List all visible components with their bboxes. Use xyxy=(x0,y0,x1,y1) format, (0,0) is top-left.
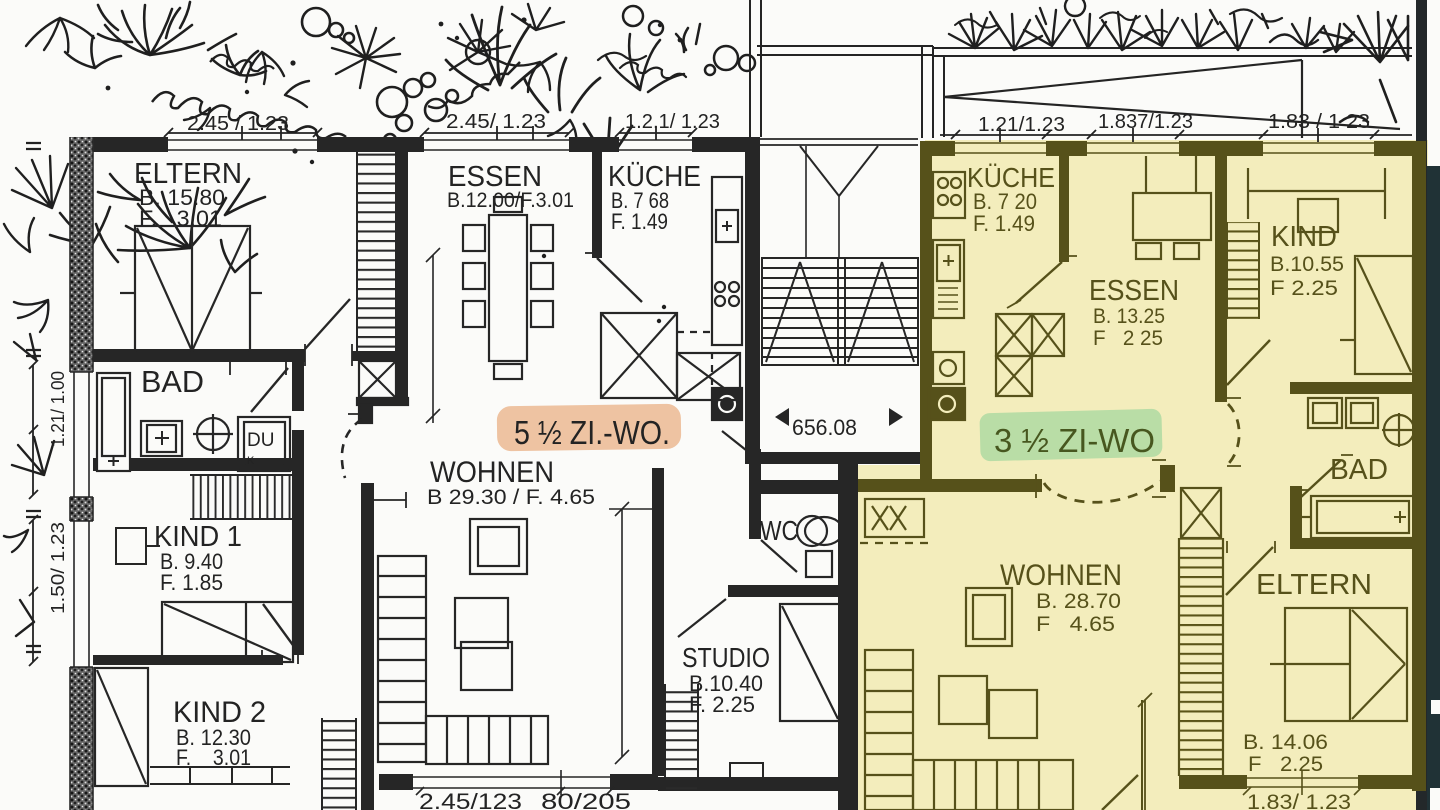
svg-text:2.45/ 1.23: 2.45/ 1.23 xyxy=(446,111,546,133)
svg-text:WOHNEN: WOHNEN xyxy=(430,456,554,489)
svg-text:ELTERN: ELTERN xyxy=(1256,569,1372,601)
svg-text:WOHNEN: WOHNEN xyxy=(1000,559,1122,592)
svg-text:F 4.65: F 4.65 xyxy=(1036,613,1115,636)
svg-text:STUDIO: STUDIO xyxy=(682,642,770,673)
svg-text:BAD: BAD xyxy=(1330,454,1388,486)
svg-text:2.45 / 1.23: 2.45 / 1.23 xyxy=(187,113,289,135)
svg-text:1.21/1.23: 1.21/1.23 xyxy=(978,114,1065,136)
svg-text:1.21/ 1.00: 1.21/ 1.00 xyxy=(48,371,68,447)
svg-text:F 2.25: F 2.25 xyxy=(1270,277,1338,300)
svg-text:BAD: BAD xyxy=(141,364,204,399)
svg-text:KIND: KIND xyxy=(1271,221,1337,253)
svg-text:F. 1.85: F. 1.85 xyxy=(160,570,223,595)
svg-text:2.45/123: 2.45/123 xyxy=(419,789,522,810)
svg-text:F. 3.01: F. 3.01 xyxy=(176,745,251,770)
svg-text:F 2.25: F 2.25 xyxy=(1248,753,1323,776)
svg-text:B. 28.70: B. 28.70 xyxy=(1036,590,1121,613)
svg-text:F. 1.49: F. 1.49 xyxy=(611,209,668,234)
svg-text:F. 2.25: F. 2.25 xyxy=(689,692,755,717)
svg-text:B.12.00/F.3.01: B.12.00/F.3.01 xyxy=(447,189,574,212)
svg-text:F. 3.01: F. 3.01 xyxy=(139,206,222,231)
svg-text:656.08: 656.08 xyxy=(792,415,857,440)
svg-text:1.837/1.23: 1.837/1.23 xyxy=(1098,111,1193,133)
svg-text:3 ½ ZI-WO: 3 ½ ZI-WO xyxy=(994,422,1155,459)
svg-text:1.83/ 1.23: 1.83/ 1.23 xyxy=(1247,791,1351,810)
svg-text:B. 13.25: B. 13.25 xyxy=(1093,305,1165,328)
svg-text:80/205: 80/205 xyxy=(541,789,631,810)
svg-text:F 2 25: F 2 25 xyxy=(1093,327,1163,350)
svg-text:DU: DU xyxy=(247,430,274,451)
svg-text:B 29.30 / F. 4.65: B 29.30 / F. 4.65 xyxy=(427,486,595,509)
svg-text:1.50/ 1.23: 1.50/ 1.23 xyxy=(48,522,68,614)
svg-text:F. 1.49: F. 1.49 xyxy=(973,211,1035,236)
svg-text:B.10.55: B.10.55 xyxy=(1270,253,1344,276)
svg-text:5 ½ ZI.-WO.: 5 ½ ZI.-WO. xyxy=(514,414,670,451)
svg-text:1.83 / 1 23: 1.83 / 1 23 xyxy=(1268,111,1370,133)
svg-text:ESSEN: ESSEN xyxy=(1089,275,1179,307)
svg-text:1.2.1/ 1.23: 1.2.1/ 1.23 xyxy=(625,111,720,133)
svg-text:B. 14.06: B. 14.06 xyxy=(1243,731,1328,754)
svg-text:K: K xyxy=(247,455,255,467)
svg-text:WC: WC xyxy=(760,515,798,546)
